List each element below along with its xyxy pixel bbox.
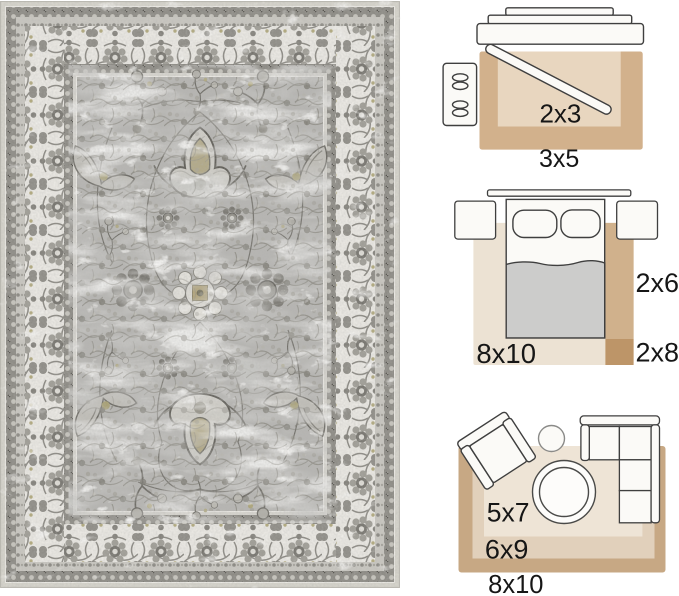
svg-text:8x10: 8x10 <box>476 338 536 369</box>
svg-text:5x7: 5x7 <box>487 497 530 527</box>
svg-text:2x6: 2x6 <box>636 268 679 298</box>
svg-text:6x9: 6x9 <box>485 534 529 564</box>
svg-text:3x5: 3x5 <box>539 145 579 173</box>
svg-text:8x10: 8x10 <box>488 571 543 596</box>
svg-text:2x8: 2x8 <box>636 337 679 367</box>
svg-text:2x3: 2x3 <box>539 99 581 129</box>
